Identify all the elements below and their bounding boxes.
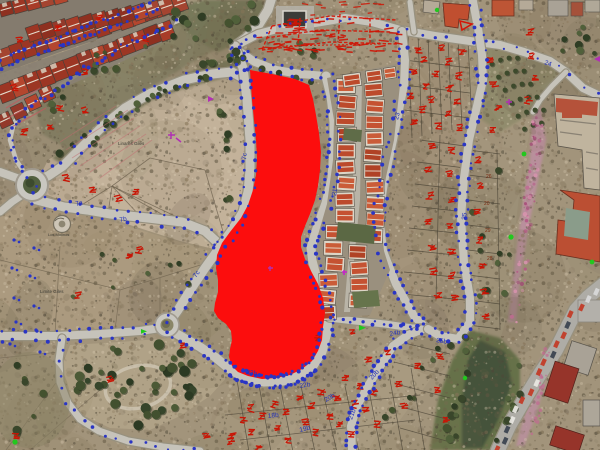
svg-text:25: 25 bbox=[461, 212, 469, 220]
svg-text:Los Molinos: Los Molinos bbox=[48, 232, 69, 237]
svg-text:29: 29 bbox=[485, 228, 491, 234]
svg-text:20: 20 bbox=[484, 201, 490, 207]
svg-text:Linares Giles: Linares Giles bbox=[118, 141, 145, 146]
svg-text:26: 26 bbox=[486, 174, 492, 180]
svg-text:Limite Giles: Limite Giles bbox=[40, 289, 64, 294]
svg-text:28: 28 bbox=[487, 256, 493, 262]
svg-text:18b: 18b bbox=[267, 412, 279, 420]
